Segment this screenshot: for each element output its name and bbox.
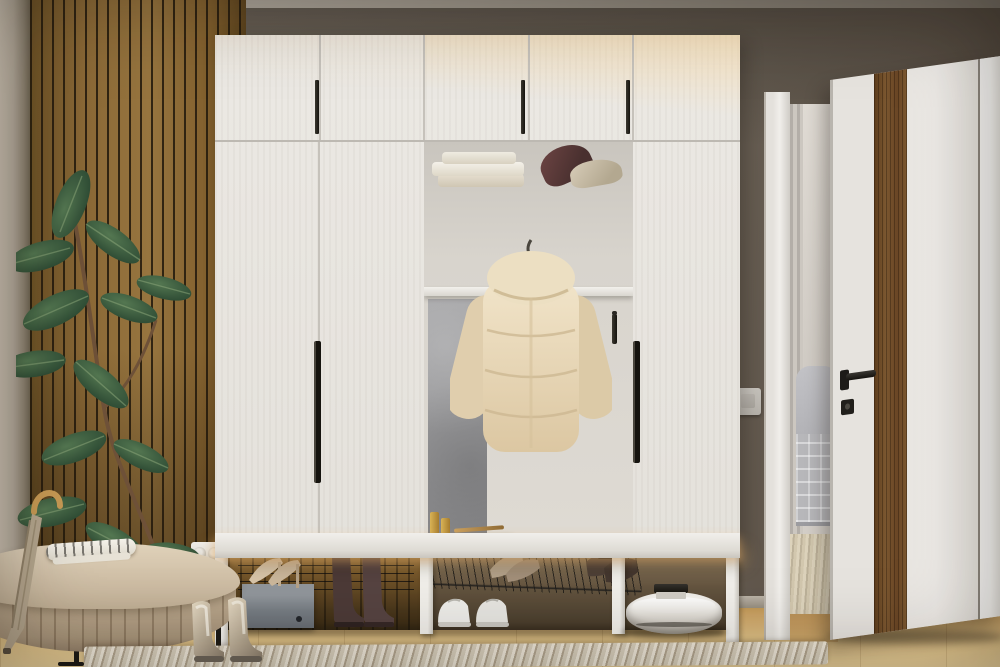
coat-hook <box>612 314 617 344</box>
wardrobe-handle <box>633 341 640 463</box>
metallic-chelsea-boots <box>184 590 268 667</box>
white-sneakers <box>434 588 514 636</box>
perfume-bottle <box>430 512 439 533</box>
bench-ottoman-foot <box>58 662 84 666</box>
door-wood-inlay <box>874 69 907 634</box>
brown-ankle-boots <box>326 548 398 632</box>
door-seam <box>528 35 530 140</box>
open-door <box>830 56 1000 640</box>
bench-leg <box>420 558 433 634</box>
door-seam <box>319 35 321 140</box>
door-handle-icon <box>846 370 876 381</box>
umbrella <box>0 476 70 656</box>
door-edge <box>978 56 1000 619</box>
cabinet-handle <box>626 80 630 134</box>
bench-leg <box>612 558 625 634</box>
wardrobe-open-niche: MERESON <box>424 142 633 533</box>
hallway-scene: MERESON <box>0 0 1000 667</box>
door-seam <box>423 35 425 140</box>
wardrobe-top-glow <box>424 35 740 140</box>
perfume-bottle <box>441 518 450 533</box>
cabinet-handle <box>521 80 525 134</box>
bench-platform <box>215 533 740 558</box>
hall-wardrobe: MERESON <box>215 35 740 558</box>
door-lock <box>841 399 854 416</box>
vacuum-sensor-front <box>656 592 686 599</box>
bench-leg <box>726 558 739 642</box>
door-frame-jamb <box>764 92 790 640</box>
cabinet-handle <box>315 80 319 134</box>
door-seam <box>632 35 634 140</box>
wardrobe-handle <box>314 341 321 483</box>
puffer-jacket <box>450 238 612 462</box>
